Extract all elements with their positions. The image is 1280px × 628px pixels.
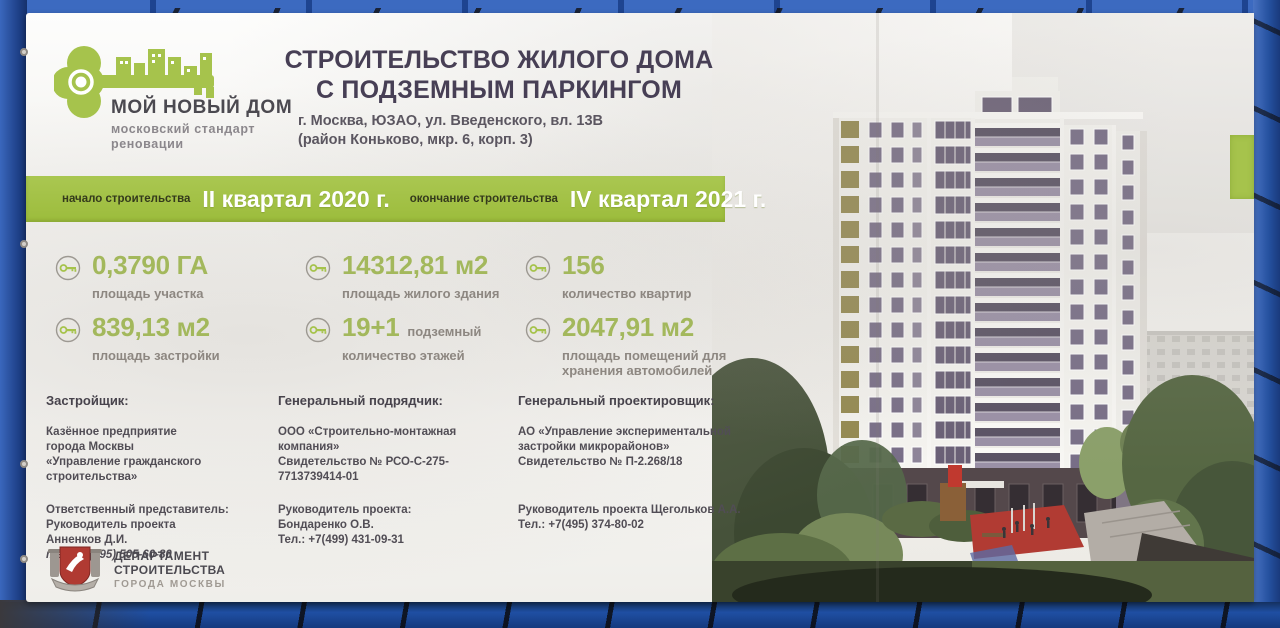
banner-grommet <box>20 48 28 56</box>
department-line2: СТРОИТЕЛЬСТВА <box>114 563 226 577</box>
stat-value: 156 <box>562 251 691 284</box>
developer-heading: Застройщик: <box>46 393 283 408</box>
stat-parking-area: 2047,91 м2 площадь помещений для хранени… <box>525 313 740 378</box>
banner-tie-straps-bottom <box>0 598 1280 628</box>
department-line1: ДЕПАРТАМЕНТ <box>114 549 226 563</box>
developer-info: Застройщик: Казённое предприятиегорода М… <box>46 393 283 563</box>
general-designer-info: Генеральный проектировщик: АО «Управлени… <box>518 393 755 533</box>
general-designer-heading: Генеральный проектировщик: <box>518 393 755 408</box>
moscow-coat-of-arms-icon <box>46 543 104 595</box>
ground-shadow <box>0 600 150 628</box>
stat-label: площадь жилого здания <box>342 286 500 301</box>
key-circle-icon <box>55 255 81 281</box>
banner-grommet <box>20 460 28 468</box>
stat-value: 14312,81 м2 <box>342 251 500 284</box>
stat-label: количество квартир <box>562 286 691 301</box>
department-line3: ГОРОДА МОСКВЫ <box>114 579 226 590</box>
fence-left-post <box>0 0 27 628</box>
stat-label: площадь участка <box>92 286 216 301</box>
banner-grommet <box>20 240 28 248</box>
key-circle-icon <box>305 317 331 343</box>
general-contractor-info: Генеральный подрядчик: ООО «Строительно-… <box>278 393 515 548</box>
stat-label: количество этажей <box>342 348 481 363</box>
key-circle-icon <box>55 317 81 343</box>
timeline-bar: начало строительства II квартал 2020 г. … <box>26 176 725 222</box>
stat-value: 2047,91 м2 <box>562 313 740 346</box>
banner: МОЙ НОВЫЙ ДОМ московский стандартреновац… <box>26 13 1254 602</box>
logo: МОЙ НОВЫЙ ДОМ московский стандартреновац… <box>54 39 304 164</box>
stat-building-area: 14312,81 м2 площадь жилого здания <box>305 251 500 301</box>
billboard-photo: МОЙ НОВЫЙ ДОМ московский стандартреновац… <box>0 0 1280 628</box>
stat-apartments: 156 количество квартир <box>525 251 691 301</box>
stat-footprint-area: 839,13 м2 площадь застройки <box>55 313 220 363</box>
general-contractor-org: ООО «Строительно-монтажная компания»Свид… <box>278 425 515 489</box>
general-contractor-heading: Генеральный подрядчик: <box>278 393 515 408</box>
stat-site-area: 0,3790 ГА площадь участка <box>55 251 216 301</box>
logo-subtitle: московский стандартреновации <box>111 122 255 152</box>
project-title: СТРОИТЕЛЬСТВО ЖИЛОГО ДОМА С ПОДЗЕМНЫМ ПА… <box>274 45 724 105</box>
key-circle-icon <box>305 255 331 281</box>
start-value: II квартал 2020 г. <box>202 186 389 213</box>
department-logo: ДЕПАРТАМЕНТ СТРОИТЕЛЬСТВА ГОРОДА МОСКВЫ <box>46 543 226 595</box>
title-line-2: С ПОДЗЕМНЫМ ПАРКИНГОМ <box>274 75 724 105</box>
end-label: окончание строительства <box>410 193 558 205</box>
logo-title: МОЙ НОВЫЙ ДОМ <box>111 97 292 119</box>
key-circle-icon <box>525 317 551 343</box>
title-line-1: СТРОИТЕЛЬСТВО ЖИЛОГО ДОМА <box>274 45 724 75</box>
developer-org: Казённое предприятиегорода Москвы«Управл… <box>46 425 283 489</box>
general-contractor-representative: Руководитель проекта:Бондаренко О.В.Тел.… <box>278 503 515 548</box>
banner-crease <box>876 13 879 602</box>
stat-value: 19+1подземный <box>342 313 481 346</box>
banner-grommet <box>20 555 28 563</box>
general-designer-org: АО «Управление экспериментальнойзастройк… <box>518 425 755 489</box>
building-rendering <box>712 13 1254 602</box>
end-value: IV квартал 2021 г. <box>570 186 766 213</box>
stat-value: 0,3790 ГА <box>92 251 216 284</box>
developer-representative: Ответственный представитель:Руководитель… <box>46 503 283 548</box>
stat-floors: 19+1подземный количество этажей <box>305 313 481 363</box>
key-circle-icon <box>525 255 551 281</box>
green-design-patch <box>1230 135 1254 199</box>
stat-label: площадь помещений для хранения автомобил… <box>562 348 740 378</box>
start-label: начало строительства <box>62 193 190 205</box>
project-address: г. Москва, ЮЗАО, ул. Введенского, вл. 13… <box>298 112 603 150</box>
stat-value: 839,13 м2 <box>92 313 220 346</box>
banner-tie-straps-right <box>1253 0 1280 628</box>
general-designer-representative: Руководитель проекта Щегольков А.А.Тел.:… <box>518 503 755 533</box>
stat-label: площадь застройки <box>92 348 220 363</box>
